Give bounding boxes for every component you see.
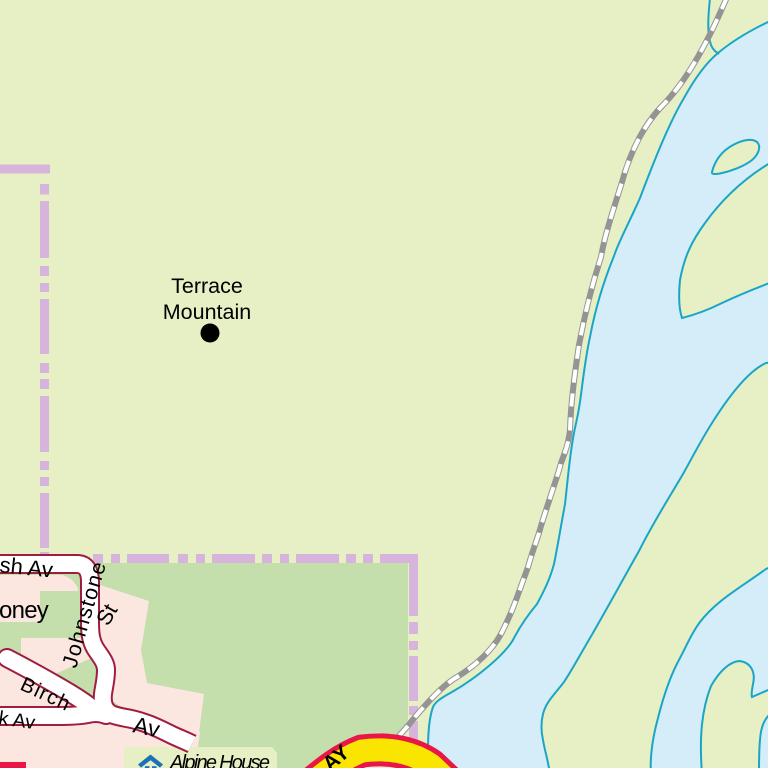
svg-text:oney: oney: [0, 597, 49, 624]
svg-text:k Av: k Av: [0, 707, 37, 734]
svg-text:Alpine House: Alpine House: [169, 752, 270, 768]
svg-text:Terrace: Terrace: [171, 274, 243, 298]
svg-text:Mountain: Mountain: [163, 300, 251, 324]
